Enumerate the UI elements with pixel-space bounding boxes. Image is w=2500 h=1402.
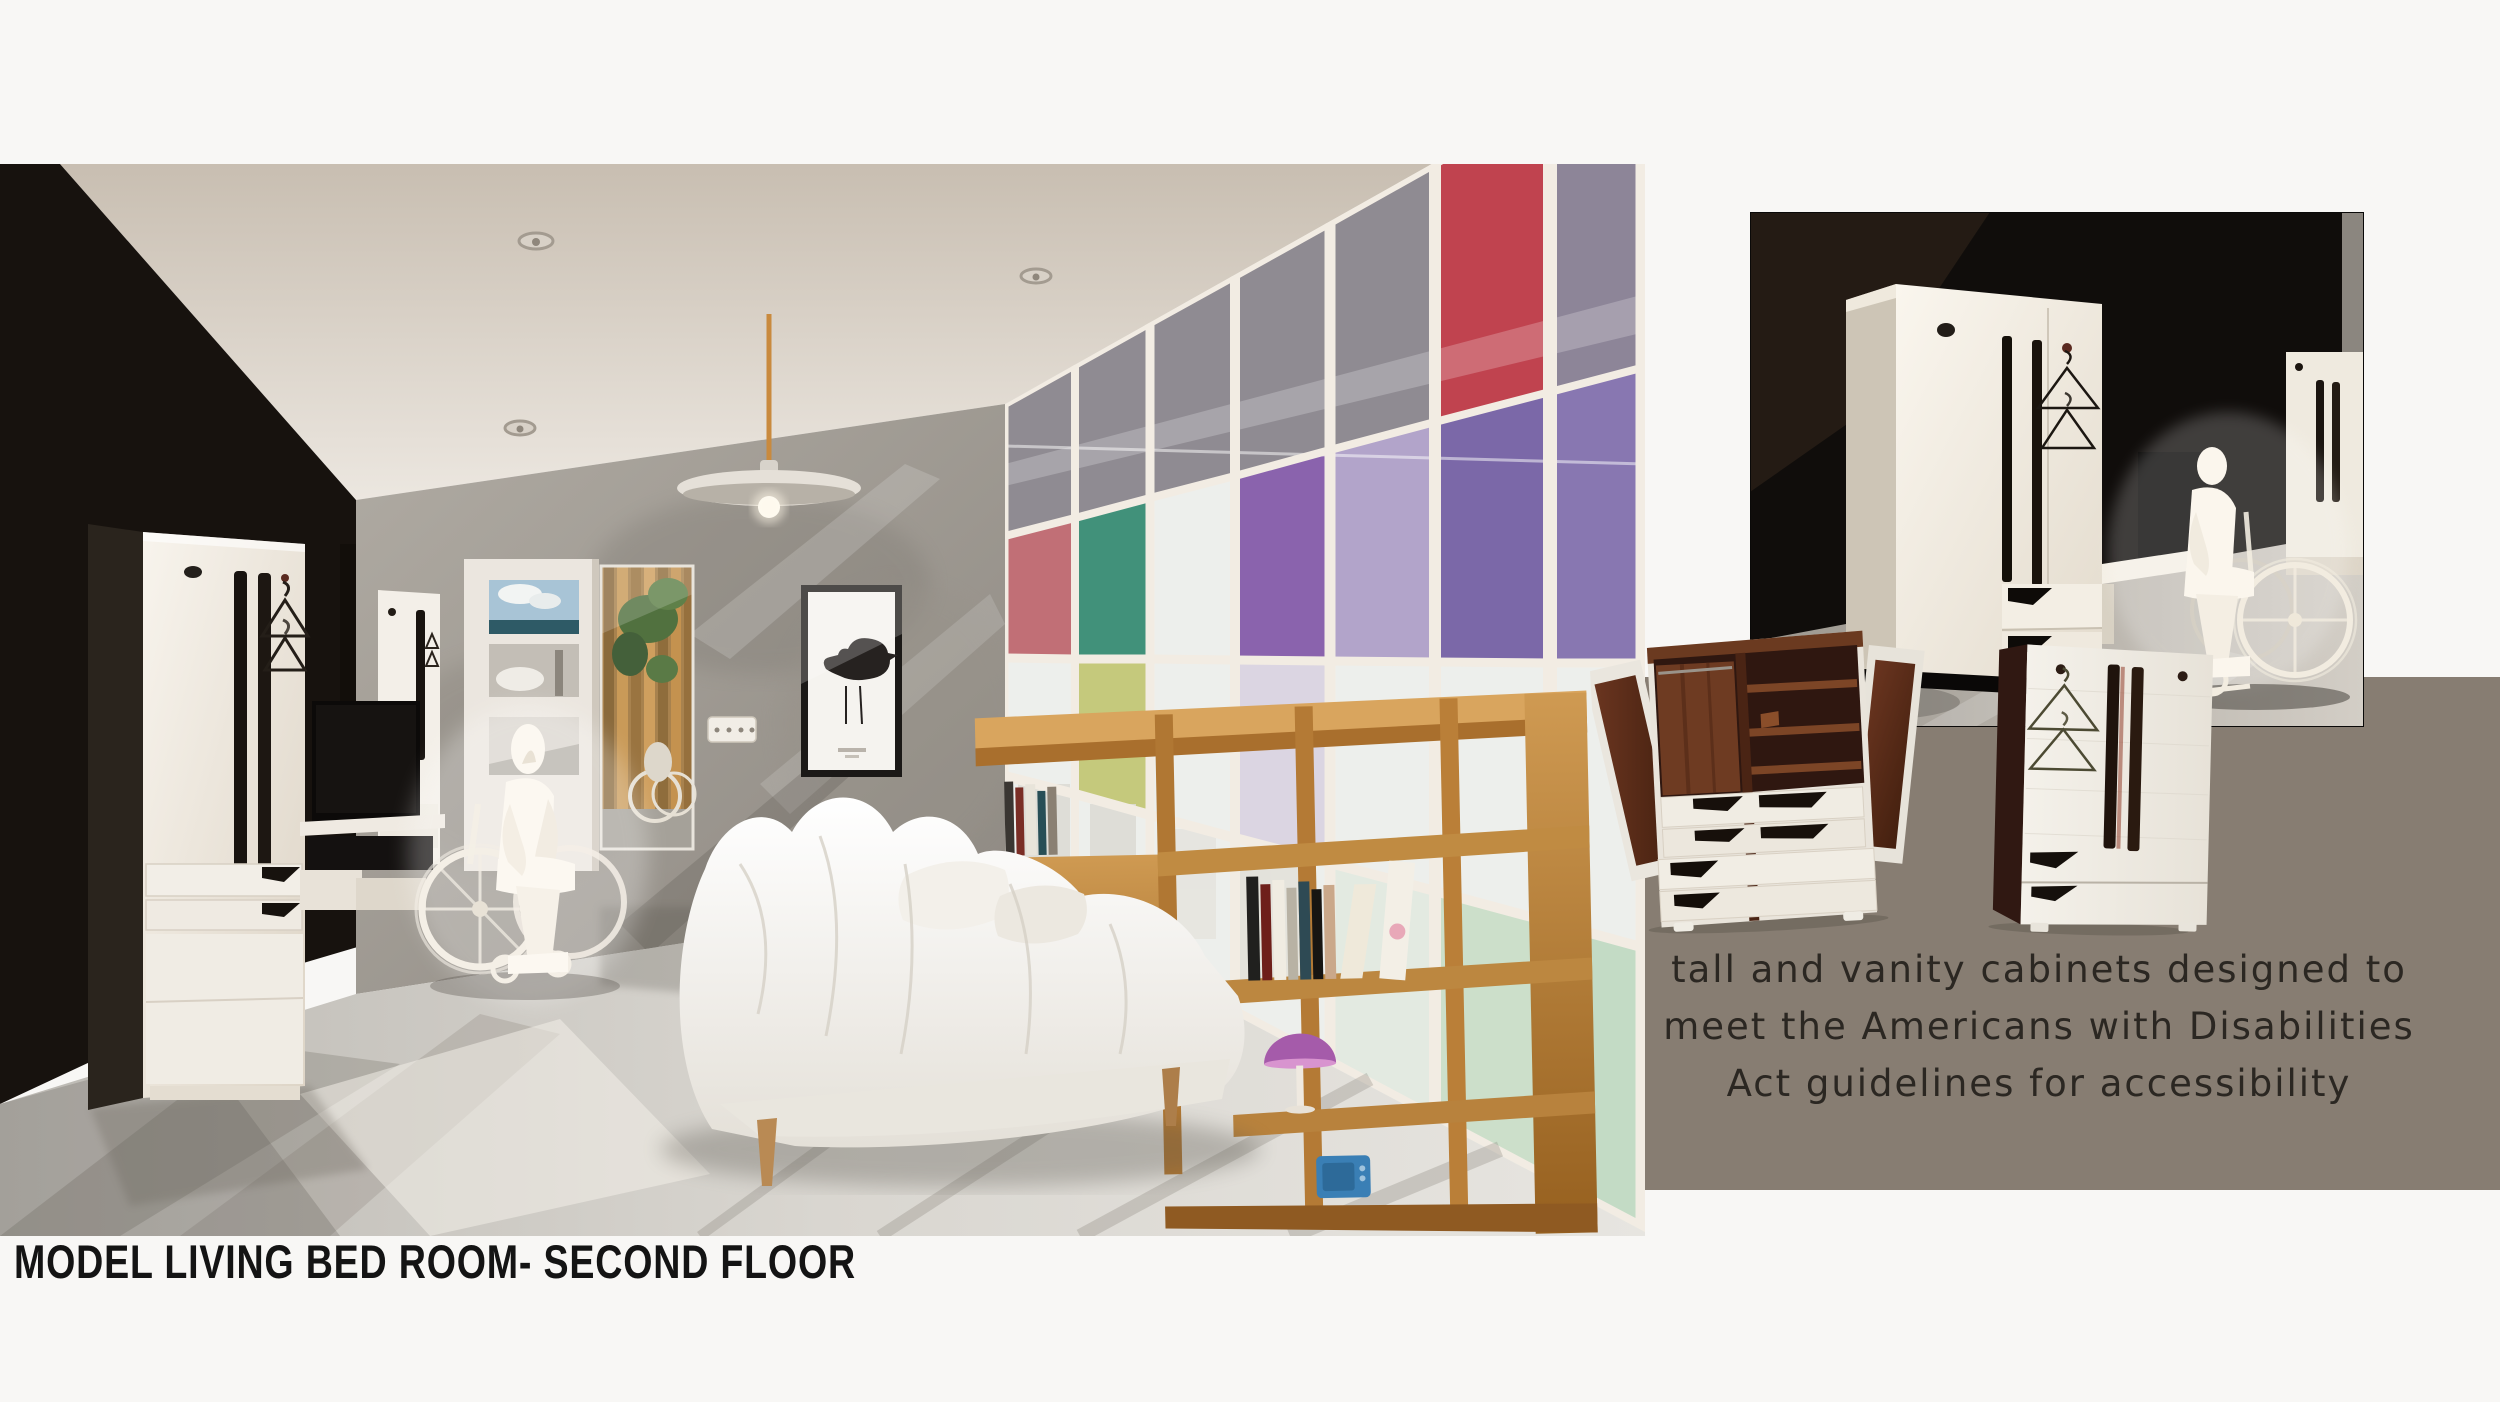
open-cabinet-image: [1588, 617, 1940, 942]
closed-cabinet-image: [1958, 627, 2221, 939]
knob: [184, 566, 202, 578]
inner-drawers: [1661, 787, 1866, 857]
wheelchair-user-figure: [408, 704, 648, 1004]
presentation-board: tall and vanity cabinets designed to mee…: [0, 0, 2500, 1402]
caption-text: tall and vanity cabinets designed to mee…: [1645, 941, 2433, 1112]
main-render-image: [0, 164, 1645, 1236]
books-small: [1004, 781, 1058, 856]
cabinet-carcass: [1647, 631, 1878, 933]
pull-handle: [2032, 340, 2042, 586]
bird-poster: [801, 585, 902, 777]
pull-handle: [234, 571, 247, 871]
knob: [1937, 323, 1955, 337]
speaker: [1316, 1155, 1371, 1198]
page-title: MODEL LIVING BED ROOM- SECOND FLOOR: [14, 1234, 856, 1289]
caption-line: meet the Americans with Disabilities: [1645, 998, 2433, 1055]
pull-handle: [258, 573, 271, 873]
caption-line: Act guidelines for accessibility: [1645, 1055, 2433, 1112]
caption-line: tall and vanity cabinets designed to: [1645, 941, 2433, 998]
pull-handle: [2002, 336, 2012, 582]
light-switch: [708, 717, 756, 742]
